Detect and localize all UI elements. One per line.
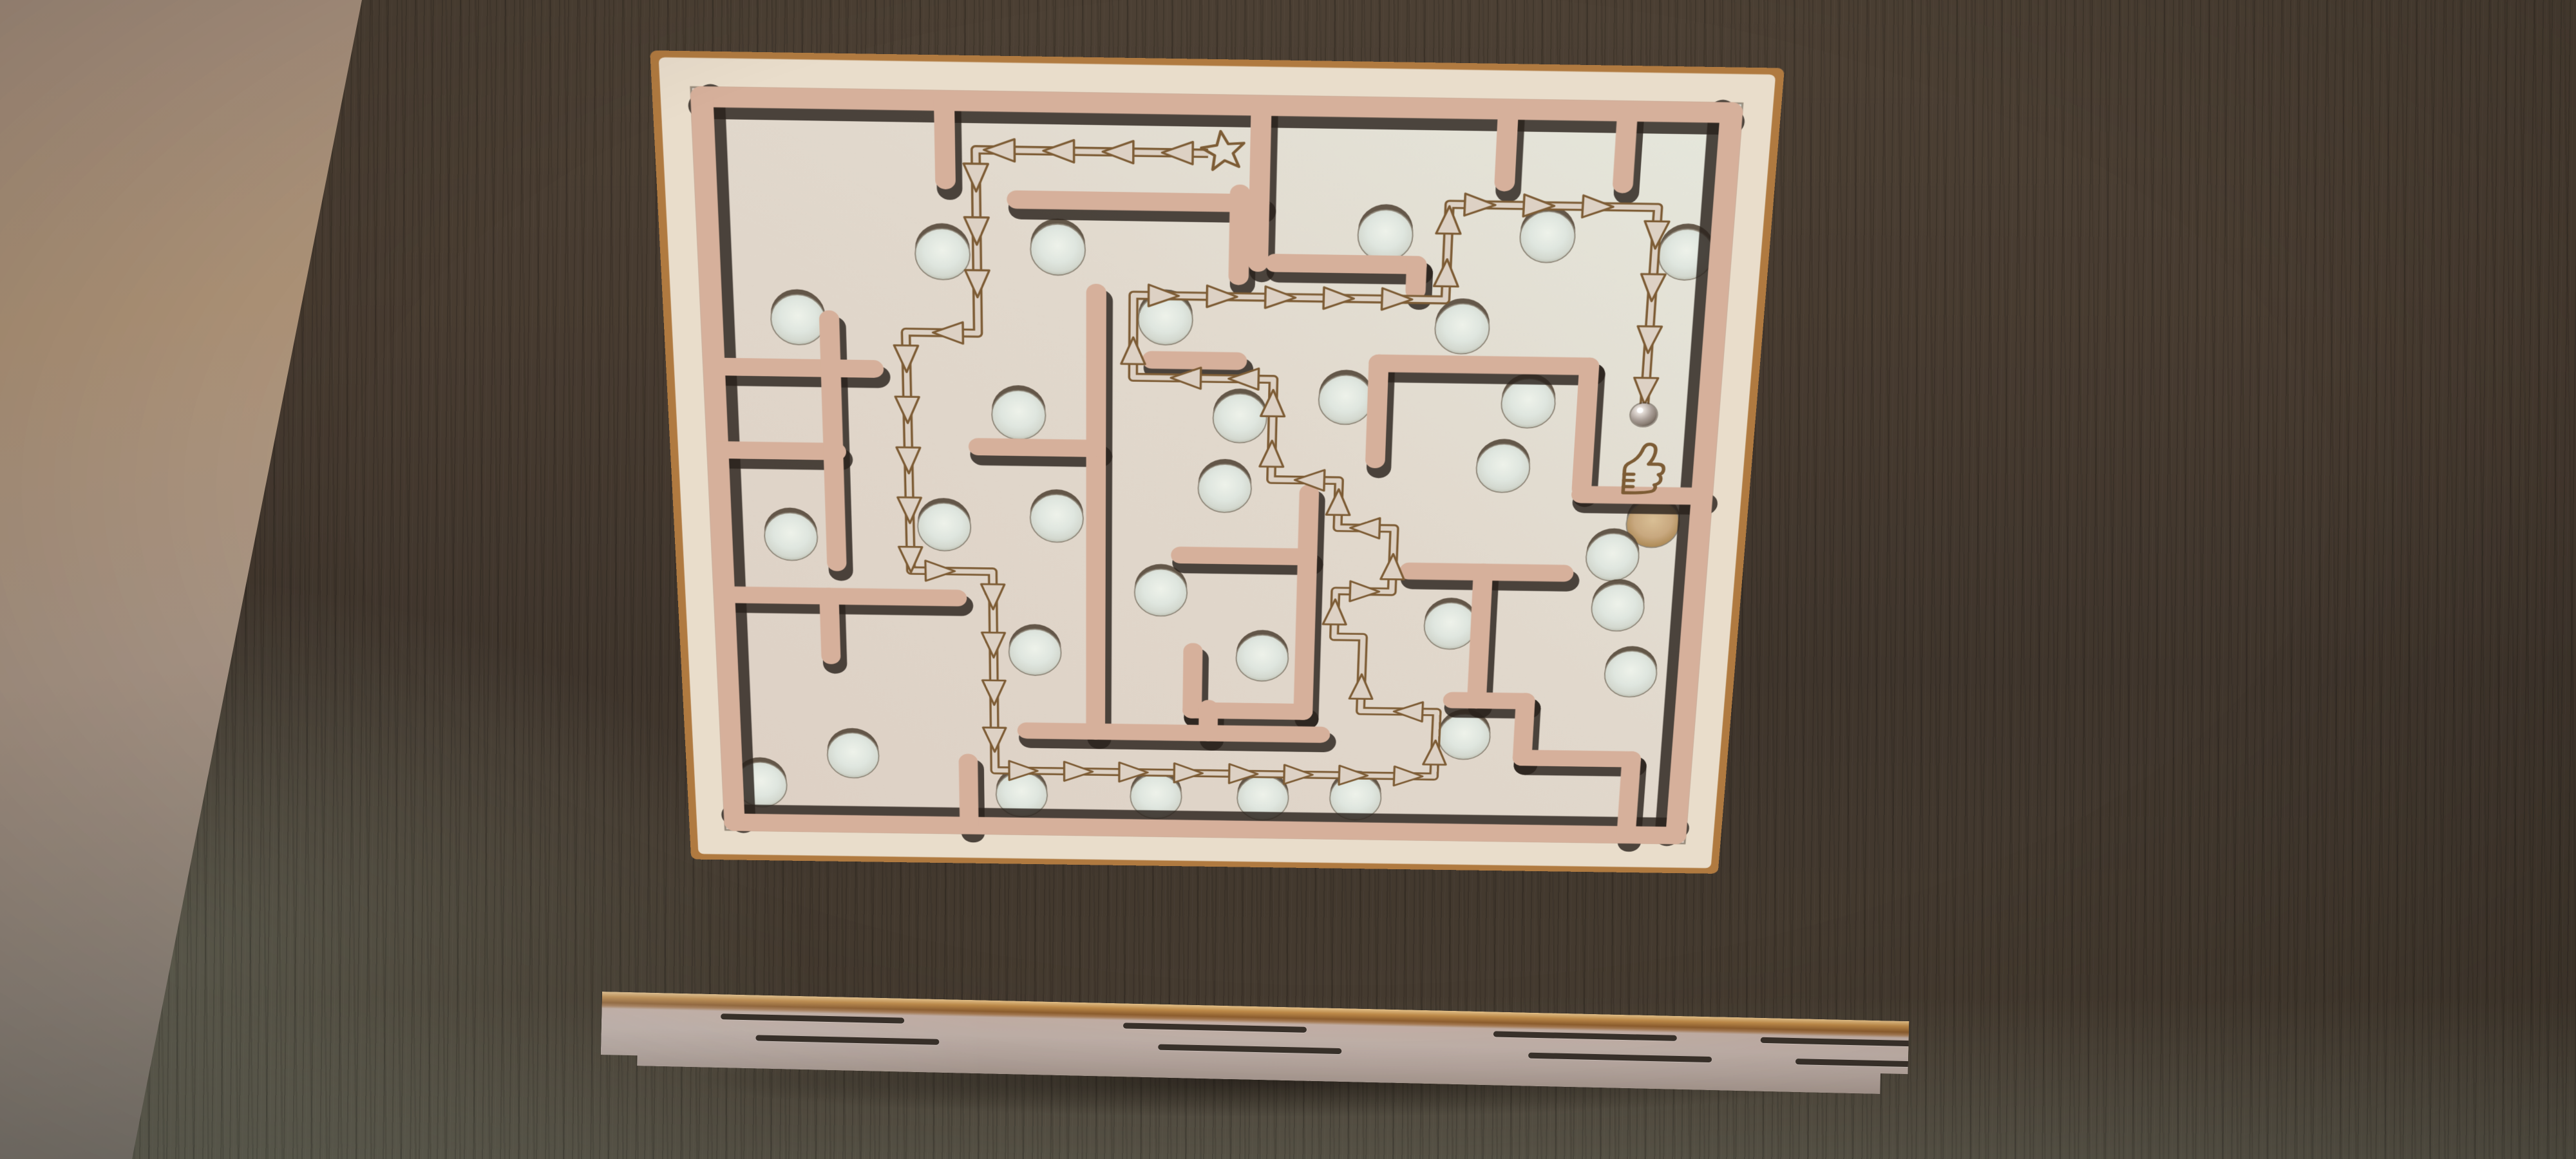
maze-wall bbox=[717, 450, 836, 452]
maze-wall bbox=[969, 762, 969, 825]
maze-wall bbox=[1522, 758, 1632, 759]
maze-hole bbox=[1318, 375, 1374, 425]
maze-hole bbox=[1138, 294, 1193, 345]
maze-wall bbox=[944, 100, 945, 180]
maze-wall bbox=[1582, 366, 1589, 489]
maze-wall bbox=[1208, 708, 1209, 733]
maze-board bbox=[650, 50, 1785, 874]
maze-wall bbox=[1017, 200, 1259, 203]
finger-joint-slot bbox=[1123, 1022, 1307, 1032]
finger-joint-slot bbox=[1158, 1044, 1341, 1054]
maze-wall bbox=[1522, 701, 1526, 758]
maze-wall bbox=[1375, 363, 1378, 460]
maze-wall bbox=[1504, 109, 1508, 182]
maze-wall bbox=[714, 366, 874, 369]
maze-wall bbox=[1192, 651, 1193, 710]
maze-wall bbox=[724, 595, 958, 598]
finger-joint-slot bbox=[1528, 1053, 1712, 1062]
maze-wall bbox=[1477, 572, 1483, 701]
finger-joint-slot bbox=[721, 1013, 904, 1023]
maze-hole bbox=[1009, 629, 1061, 676]
maze-wall bbox=[1581, 495, 1701, 496]
maze-wall bbox=[1258, 106, 1261, 263]
maze-hole bbox=[1236, 634, 1289, 681]
maze-wall bbox=[1379, 363, 1589, 366]
maze-hole bbox=[1135, 569, 1188, 616]
maze-wall bbox=[1180, 555, 1307, 557]
maze-wall bbox=[1623, 111, 1627, 184]
finger-joint-slot bbox=[755, 1035, 939, 1044]
maze-hole bbox=[1030, 223, 1085, 276]
maze-wall bbox=[1626, 759, 1631, 834]
maze-wall bbox=[1152, 360, 1237, 361]
maze-box-lid bbox=[650, 50, 1785, 874]
maze-wall bbox=[1275, 263, 1417, 265]
maze-wall bbox=[829, 596, 831, 656]
maze-wall bbox=[1027, 731, 1321, 735]
maze-wall bbox=[978, 447, 1096, 449]
maze-hole bbox=[1213, 393, 1267, 443]
finger-joint-slot bbox=[1493, 1031, 1677, 1041]
maze-wall bbox=[1095, 293, 1096, 731]
maze-wall bbox=[1238, 194, 1240, 276]
maze-wall bbox=[829, 319, 837, 563]
maze-wall bbox=[1303, 493, 1309, 712]
maze-wall bbox=[1416, 265, 1417, 290]
maze-wall bbox=[1453, 700, 1526, 701]
maze-hole bbox=[1198, 464, 1252, 513]
maze-hole bbox=[992, 390, 1046, 440]
maze-hole bbox=[1030, 494, 1083, 542]
photo-scene bbox=[0, 0, 2576, 1159]
